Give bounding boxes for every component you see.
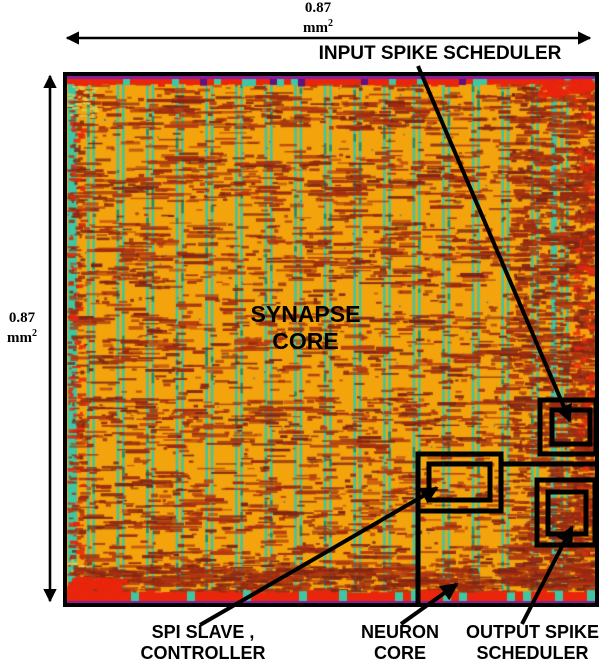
synapse-core-label: SYNAPSE CORE	[228, 301, 383, 355]
left-dimension-label: 0.87 mm2	[1, 311, 43, 346]
left-dimension-value: 0.87	[1, 311, 43, 326]
chip-die-figure: 0.87 mm2 0.87 mm2 INPUT SPIKE SCHEDULER …	[0, 0, 602, 666]
top-dimension-value: 0.87	[288, 1, 348, 16]
left-dimension-unit: mm2	[1, 326, 43, 346]
top-dimension-label: 0.87 mm2	[288, 1, 348, 36]
top-dimension-unit: mm2	[288, 16, 348, 36]
spi-slave-controller-label: SPI SLAVE , CONTROLLER	[124, 622, 282, 664]
output-spike-scheduler-label: OUTPUT SPIKE SCHEDULER	[460, 622, 602, 664]
neuron-core-label: NEURON CORE	[345, 622, 455, 664]
input-spike-scheduler-label: INPUT SPIKE SCHEDULER	[295, 43, 585, 65]
